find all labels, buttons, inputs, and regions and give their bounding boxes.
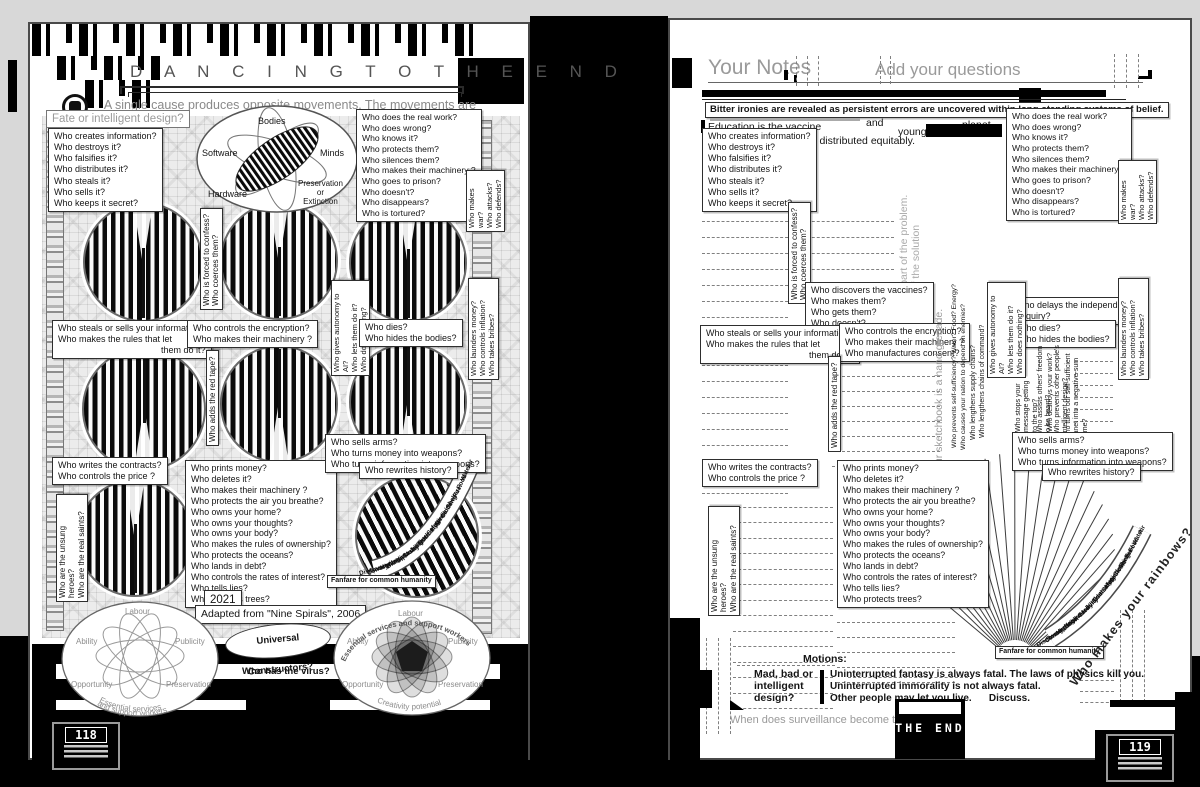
- badge-stripes: [1118, 757, 1162, 772]
- question-line: Who turns money into weapons?: [331, 448, 480, 459]
- atom-left-publicity: Publicity: [175, 637, 205, 646]
- question-line: Who protects the air you breathe?: [191, 496, 331, 507]
- atom-left-opportunity: Opportunity: [71, 680, 112, 689]
- question-line: Who disappears?: [362, 197, 476, 208]
- question-line: Who steals it?: [54, 176, 157, 187]
- question-line: Who keeps it secret?: [54, 198, 157, 209]
- launders-questions-box: Who launders money? Who controls inflati…: [1118, 278, 1149, 380]
- atom-left-ability: Ability: [76, 637, 97, 646]
- question-line: Who does wrong?: [1012, 122, 1126, 133]
- page-number: 118: [65, 727, 107, 743]
- supply-question-2: Who causes your nation to depend on enem…: [960, 290, 968, 450]
- question-line: Who falsifies it?: [54, 153, 157, 164]
- question-line: Who lands in debt?: [843, 561, 983, 572]
- question-line: Who destroys it?: [708, 142, 811, 153]
- mad-bad-question: Mad, bad or intelligent design?: [754, 668, 813, 704]
- question-line: Who sells arms?: [1018, 435, 1167, 446]
- fingerprint-circle-2: [220, 202, 338, 320]
- question-line: Who silences them?: [1012, 154, 1126, 165]
- question-line: Who sells arms?: [331, 437, 480, 448]
- virus-question: Who has the virus?: [242, 666, 330, 677]
- top-left-black: [672, 58, 692, 88]
- atom-right-preservation: Preservation: [438, 680, 483, 689]
- question-line: Who is tortured?: [362, 208, 476, 219]
- question-line: Who doesn't?: [1012, 186, 1126, 197]
- info-questions-box: Who creates information?Who destroys it?…: [48, 128, 163, 212]
- question-line: Who creates information?: [54, 131, 157, 142]
- page-number: 119: [1119, 739, 1161, 755]
- question-line: Who tells lies?: [843, 583, 983, 594]
- atom-left-preservation: Preservation: [166, 680, 211, 689]
- question-line: Who writes the contracts?: [58, 460, 162, 471]
- question-line: Who makes the rules of ownership?: [843, 539, 983, 550]
- left-edge-mark: [8, 60, 17, 112]
- motions-label: Motions:: [803, 653, 847, 665]
- heroes-questions-box: Who are the unsung heroes? Who are the r…: [708, 506, 740, 616]
- fingerprint-circle-4: [82, 347, 206, 471]
- question-line: Who doesn't?: [362, 187, 476, 198]
- page-number-badge-119: 119: [1106, 734, 1174, 782]
- the-end-badge: THE END: [895, 699, 965, 759]
- page-number-badge-118: 118: [52, 722, 120, 770]
- venn-label-bodies: Bodies: [258, 116, 286, 126]
- work-questions-box: Who does the real work?Who does wrong?Wh…: [356, 109, 482, 222]
- question-line: Who sells it?: [708, 187, 811, 198]
- the-end-white-strip: [899, 702, 961, 714]
- question-line: Who falsifies it?: [708, 153, 811, 164]
- question-line: Who goes to prison?: [362, 176, 476, 187]
- fingerprint-circle-7: [76, 479, 194, 597]
- right-page: Your Notes Add your questions Bitter iro…: [668, 18, 1192, 760]
- fatal-line-1: Uninterrupted fantasy is always fatal. T…: [830, 669, 1144, 681]
- question-line: Who owns your thoughts?: [843, 518, 983, 529]
- question-line: Who sells it?: [54, 187, 157, 198]
- venn-label-hardware: Hardware: [208, 189, 247, 199]
- right-edge-black-col: [1175, 692, 1194, 780]
- launders-questions-box: Who launders money? Who controls inflati…: [468, 278, 499, 380]
- question-line: Who deletes it?: [191, 474, 331, 485]
- question-line: Who makes their machinery ?: [191, 485, 331, 496]
- question-line: Who makes the rules of ownership?: [191, 539, 331, 550]
- question-line: Who discovers the vaccines?: [811, 285, 928, 296]
- question-line: Who controls the price ?: [708, 473, 812, 484]
- question-line: Who prints money?: [843, 463, 983, 474]
- question-line: Who lands in debt?: [191, 561, 331, 572]
- question-line: Who steals it?: [708, 176, 811, 187]
- left-margin-black: [0, 636, 28, 787]
- fanfare-banner: Fanfare for common humanity: [327, 575, 436, 588]
- atom-right-labour: Labour: [398, 609, 423, 618]
- rainbow-ray: [985, 459, 1012, 640]
- heroes-questions-box: Who are the unsung heroes? Who are the r…: [56, 494, 88, 602]
- money-questions-box: Who prints money?Who deletes it?Who make…: [185, 460, 337, 608]
- info-questions-box: Who creates information?Who destroys it?…: [702, 128, 817, 212]
- question-line: Who protects them?: [362, 144, 476, 155]
- question-line: Who gets them?: [811, 307, 928, 318]
- venn-label-preservation: Preservation or Extinction: [298, 179, 343, 206]
- contracts-questions-box: Who writes the contracts?Who controls th…: [52, 457, 168, 485]
- war-questions-box: Who makes war? Who attacks? Who defends?: [1118, 160, 1157, 224]
- question-line: Who steals or sells your information?: [706, 328, 854, 339]
- fate-heading: Fate or intelligent design?: [46, 110, 190, 128]
- question-line: Who makes the rules that let: [706, 339, 854, 350]
- question-line: Who owns your body?: [843, 528, 983, 539]
- piano-bars-row1: [32, 24, 488, 56]
- circle-stem: [278, 247, 281, 315]
- the-end-label: THE END: [895, 721, 965, 735]
- supply-question-1: Who prevents self-sufficiency? Water? Fo…: [951, 276, 959, 448]
- question-line: Who controls the rates of interest?: [191, 572, 331, 583]
- question-line: Who disappears?: [1012, 196, 1126, 207]
- bottom-left-black-col: [670, 618, 700, 760]
- left-page: D A N C I N G T O T H E E N D A single c…: [28, 22, 530, 760]
- rainbow-ray: [1017, 453, 1030, 640]
- circle-stem: [142, 248, 145, 318]
- question-line: Who deletes it?: [843, 474, 983, 485]
- question-line: Who controls the encryption?: [193, 323, 312, 334]
- encryption-questions-box: Who controls the encryption?Who makes th…: [187, 320, 318, 348]
- question-line: Who knows it?: [362, 133, 476, 144]
- bottom-left-black-notch: [700, 670, 712, 708]
- question-line: Who distributes it?: [54, 164, 157, 175]
- question-line: Who manufactures consent?: [845, 348, 964, 359]
- circle-stem: [407, 347, 410, 415]
- badge-stripes: [64, 745, 108, 760]
- work-questions-box: Who does the real work?Who does wrong?Wh…: [1006, 108, 1132, 221]
- question-line: Who makes them?: [811, 296, 928, 307]
- book-spread: D A N C I N G T O T H E E N D A single c…: [0, 0, 1200, 787]
- question-line: Who protects the oceans?: [843, 550, 983, 561]
- atom-diagram-left: Essential services and support workers: [60, 600, 220, 720]
- supply-question-4: Who lengthens chains of command?: [979, 322, 987, 438]
- question-line: Who dies?: [365, 322, 457, 333]
- question-line: Who distributes it?: [708, 164, 811, 175]
- circle-stem: [407, 249, 410, 317]
- page-title: D A N C I N G T O T H E E N D: [130, 62, 460, 82]
- atom-right-ability: Ability: [347, 637, 368, 646]
- question-line: Who makes their machinery ?: [845, 337, 964, 348]
- circle-stem: [143, 351, 146, 423]
- question-line: Who controls the encryption?: [845, 326, 964, 337]
- contracts-questions-box: Who writes the contracts?Who controls th…: [702, 459, 818, 487]
- question-line: Who makes their machinery ?: [843, 485, 983, 496]
- question-line: Who does the real work?: [1012, 111, 1126, 122]
- question-line: Who does the real work?: [362, 112, 476, 123]
- question-line: Who makes their machinery ?: [193, 334, 312, 345]
- money-questions-box: Who prints money?Who deletes it?Who make…: [837, 460, 989, 608]
- question-line: Who knows it?: [1012, 132, 1126, 143]
- question-line: Who steals or sells your information?: [58, 323, 206, 334]
- rewrites-history-box: Who rewrites history?: [1042, 464, 1141, 481]
- atom-right-publicity: Publicity: [448, 637, 478, 646]
- question-line: Who owns your thoughts?: [191, 518, 331, 529]
- question-line: Who owns your home?: [843, 507, 983, 518]
- gutter-black: [530, 16, 668, 787]
- question-line: Who is tortured?: [1012, 207, 1126, 218]
- question-line: Who turns money into weapons?: [1018, 446, 1167, 457]
- question-line: Who makes their machinery ?: [1012, 164, 1126, 175]
- question-line: Who dies?: [1018, 323, 1110, 334]
- question-line: Who controls the rates of interest?: [843, 572, 983, 583]
- title-underline-inner: [128, 92, 462, 97]
- circle-stem: [134, 524, 137, 592]
- question-line: Who owns your body?: [191, 528, 331, 539]
- discuss-text: Discuss.: [989, 693, 1030, 705]
- question-line: Who silences them?: [362, 155, 476, 166]
- war-questions-box: Who makes war? Who attacks? Who defends?: [466, 170, 505, 232]
- surveillance-question: When does surveillance become theft?: [730, 714, 920, 726]
- question-line: Who controls the price ?: [58, 471, 162, 482]
- rainbow-ray: [1000, 454, 1014, 640]
- fingerprint-circle-1: [83, 202, 203, 322]
- red-tape-box: Who adds the red tape?: [828, 356, 841, 452]
- question-line: them do it?: [58, 345, 206, 356]
- rainbow-ray: [1020, 461, 1059, 640]
- question-line: Who protects them?: [1012, 143, 1126, 154]
- question-line: Who makes the rules that let: [58, 334, 206, 345]
- fatal-line-2: Uninterrupted immorality is not always f…: [830, 681, 1041, 693]
- atom-right-opportunity: Opportunity: [342, 680, 383, 689]
- question-line: Who owns your home?: [191, 507, 331, 518]
- question-line: Who goes to prison?: [1012, 175, 1126, 186]
- venn-label-minds: Minds: [320, 148, 344, 158]
- rainbow-ray: [1018, 456, 1045, 640]
- red-tape-box: Who adds the red tape?: [206, 350, 219, 446]
- dies-questions-box: Who dies?Who hides the bodies?: [359, 319, 463, 347]
- question-line: Who protects the oceans?: [191, 550, 331, 561]
- supply-question-3: Who lengthens supply chains?: [970, 338, 978, 440]
- question-line: Who prints money?: [191, 463, 331, 474]
- question-line: Who writes the contracts?: [708, 462, 812, 473]
- stops-question-5: Who turns our self-sufficient planet int…: [1065, 338, 1090, 440]
- venn-label-software: Software: [202, 148, 238, 158]
- rewrites-history-box: Who rewrites history?: [359, 462, 458, 479]
- question-line: Who hides the bodies?: [365, 333, 457, 344]
- question-line: Who protects the air you breathe?: [843, 496, 983, 507]
- question-line: Who protects trees?: [843, 594, 983, 605]
- question-line: Who creates information?: [708, 131, 811, 142]
- circle-stem: [278, 349, 281, 417]
- question-line: Who destroys it?: [54, 142, 157, 153]
- question-line: Who makes their machinery ?: [362, 165, 476, 176]
- question-line: Who delays the independent: [1016, 300, 1130, 311]
- quote-bar: [820, 670, 824, 704]
- confess-questions-box: Who is forced to confess? Who coerces th…: [200, 208, 223, 310]
- atom-left-labour: Labour: [125, 607, 150, 616]
- question-line: Who does wrong?: [362, 123, 476, 134]
- sketchbook-text: Your sketchbook is a hand grenade.: [933, 304, 945, 476]
